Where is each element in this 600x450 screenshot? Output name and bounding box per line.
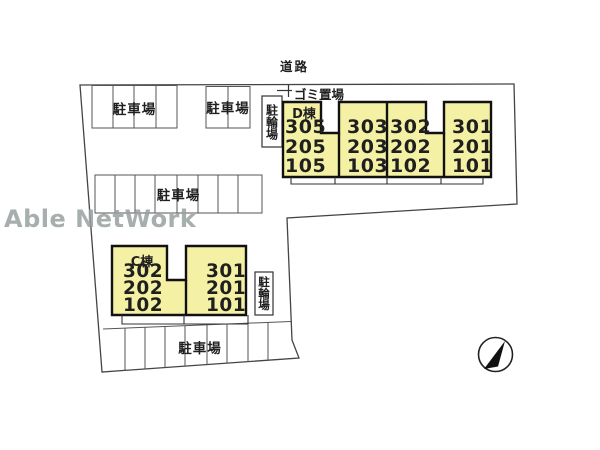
room-number: 101	[452, 157, 489, 177]
bicycle-parking-label-d: 駐輪場	[262, 96, 282, 147]
parking-label-top-left: 駐車場	[92, 98, 177, 118]
garbage-area-label: ゴミ置場	[294, 84, 344, 103]
room-number: 105	[285, 157, 321, 177]
room-number: 102	[390, 157, 427, 177]
room-number: 301	[452, 118, 489, 138]
room-number: 101	[206, 298, 242, 315]
building-d-section-3-rooms: 302 202 102	[390, 118, 427, 177]
room-number: 103	[347, 157, 384, 177]
room-number: 305	[285, 118, 321, 138]
agency-watermark: Able NetWork	[4, 205, 196, 233]
site-plan: 道路 ゴミ置場 駐車場 駐車場 駐車場 駐車場 駐輪場 駐輪場 D棟 305 2…	[0, 0, 600, 450]
parking-label-bottom: 駐車場	[103, 337, 297, 357]
room-number: 102	[123, 298, 159, 315]
building-d-section-4-rooms: 301 201 101	[452, 118, 489, 177]
parking-label-top-right: 駐車場	[206, 97, 250, 117]
building-d-section-2-rooms: 303 203 103	[347, 118, 384, 177]
road-label: 道路	[280, 56, 309, 75]
bicycle-parking-label-c: 駐輪場	[255, 272, 273, 315]
north-arrow-icon	[479, 338, 513, 372]
building-c-walkway	[122, 315, 248, 324]
building-c-section-2-rooms: 301 201 101	[206, 264, 242, 314]
building-c-section-1-rooms: 302 202 102	[123, 264, 159, 314]
building-d-section-1-rooms: 305 205 105	[285, 118, 321, 177]
room-number: 303	[347, 118, 384, 138]
room-number: 302	[390, 118, 427, 138]
parking-label-middle: 駐車場	[95, 184, 262, 204]
